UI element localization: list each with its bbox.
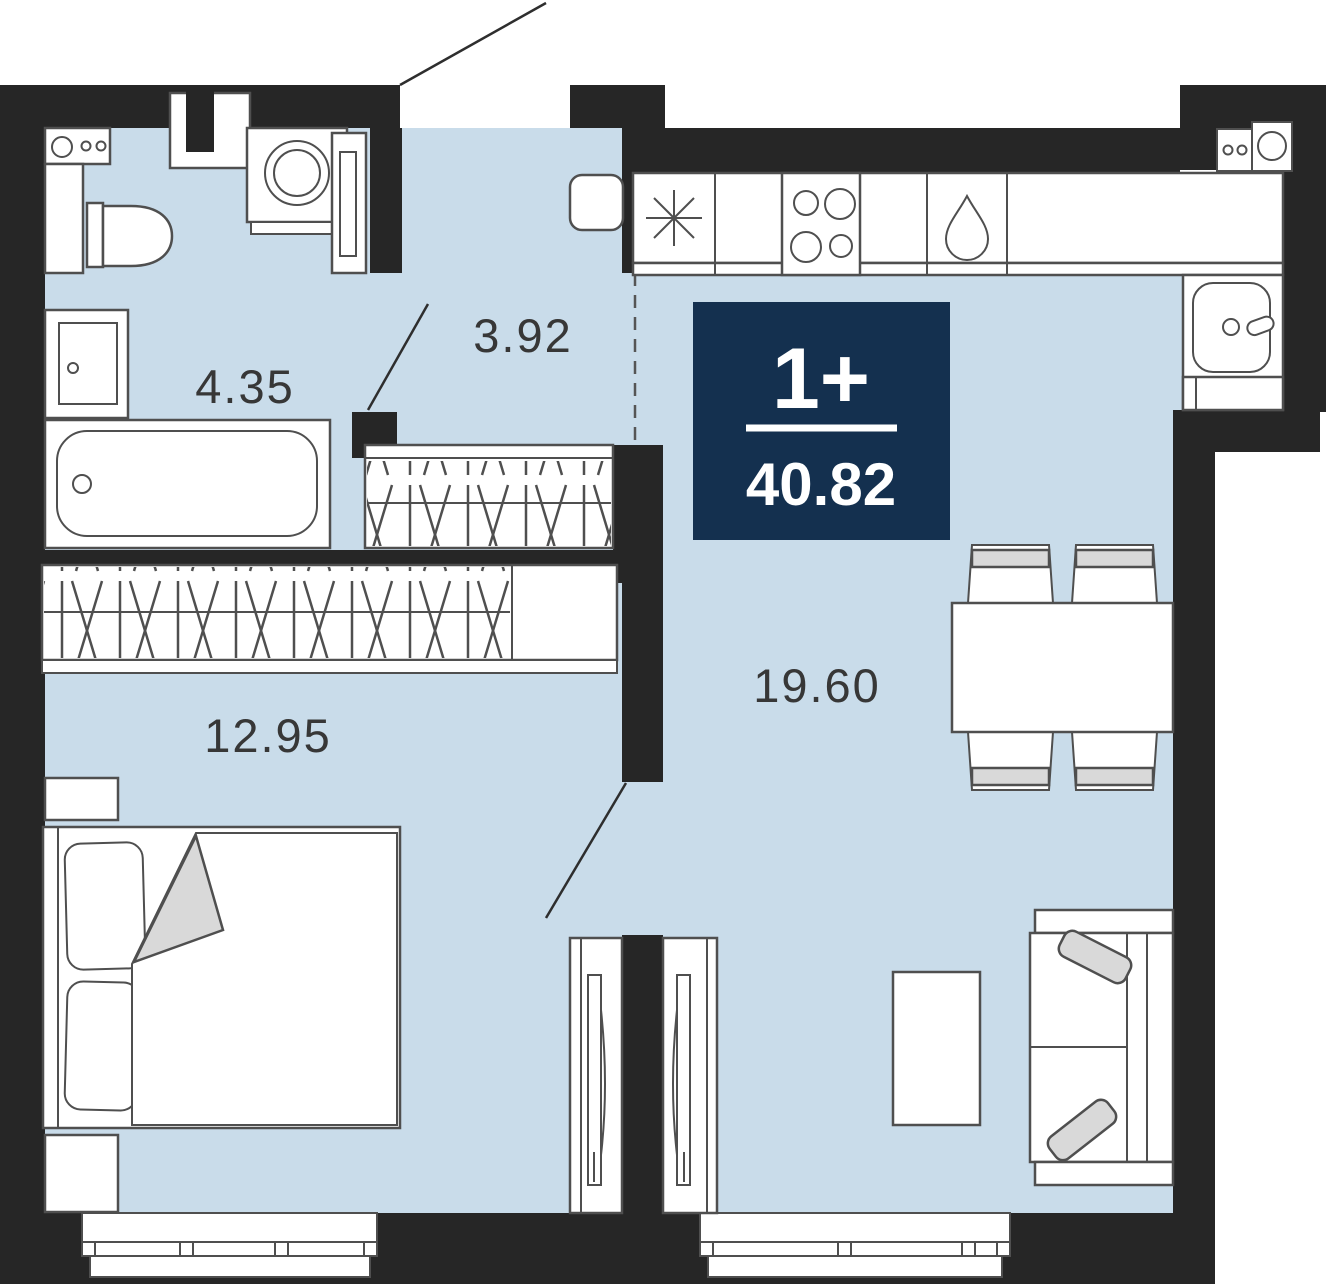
chair [968,732,1053,790]
bathroom-area-label: 4.35 [195,360,294,413]
wall-left [0,85,45,1284]
bedroom-window [82,1213,377,1277]
toilet-bowl [103,206,172,266]
nightstand [45,778,118,820]
utility-box [570,175,623,230]
sofa [1030,910,1173,1185]
window-frame [700,1242,1010,1256]
bedroom-area-label: 12.95 [204,709,332,762]
wall-central-mid [622,583,663,782]
vanity-cabinet [45,164,83,273]
pillow [64,842,145,970]
window-frame [82,1242,377,1256]
dining-table [952,603,1173,732]
chair [1072,732,1157,790]
window-sill [700,1213,1010,1242]
basin-icon [52,137,72,157]
window-outer-ledge [708,1256,1002,1277]
toilet-tank [87,203,103,267]
double-bed [43,827,400,1128]
pillow [64,981,139,1111]
entrance-door-swing-line [400,3,546,85]
apartment-badge: 1+ 40.82 [693,302,950,540]
fridge-icon [646,190,702,246]
tall-cabinet [332,133,366,273]
floor-plan-page: 4.35 3.92 12.95 19.60 1+ 40.82 [0,0,1326,1284]
water-heater-cabinet [45,310,128,418]
toilet [87,203,172,267]
badge-total-area: 40.82 [746,451,896,518]
window-outer-ledge [90,1256,370,1277]
floor-plan-svg: 4.35 3.92 12.95 19.60 1+ 40.82 [0,0,1326,1284]
wall-central-upper [613,445,663,553]
bedroom-wardrobe [42,565,617,673]
kitchen-sink-counter [1183,275,1283,410]
radiator-panel [663,938,717,1213]
sofa-armrest [1035,910,1173,933]
drain-icon [73,475,91,493]
cabinet-handle-icon [68,363,78,373]
tap-dot-icon [97,142,106,151]
hallway-area-label: 3.92 [473,309,572,362]
living-area-label: 19.60 [753,659,881,712]
chair [968,545,1053,603]
counter-lip [633,263,1283,275]
window-sill [82,1213,377,1242]
tap-dot-icon [1224,146,1233,155]
coffee-table [893,972,980,1125]
wardrobe-door-track [42,660,617,673]
tap-dot-icon [82,142,91,151]
bathtub [45,420,330,548]
radiator-panel [570,938,622,1213]
wall-right-upper [1283,170,1326,412]
wall-kitchen-top [622,128,1180,172]
badge-rooms-label: 1+ [772,331,870,427]
wall-central-lower [622,935,663,1284]
wall-right-step [1173,410,1320,452]
hall-wardrobe [365,445,613,548]
hob-cell [782,173,860,275]
tap-icon [1223,319,1239,335]
sofa-armrest [1035,1162,1173,1185]
vent-shaft-stub [186,90,214,152]
nightstand [45,1135,118,1212]
wall-faucet-panel [1217,122,1292,171]
living-window [700,1213,1010,1277]
wall-right-lower [1173,452,1215,1284]
tap-dot-icon [1238,146,1247,155]
chair [1072,545,1157,603]
basin-icon [1258,132,1286,160]
wall-bathroom-divider [370,128,402,273]
